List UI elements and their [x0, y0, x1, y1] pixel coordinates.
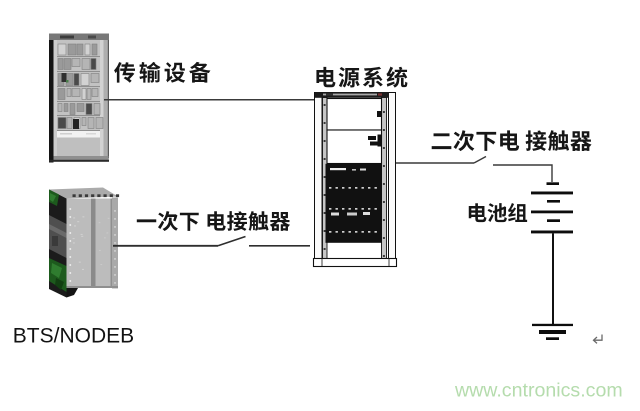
svg-text:www.cntronics.com: www.cntronics.com [454, 380, 623, 402]
svg-text:BTS/NODEB: BTS/NODEB [13, 325, 134, 348]
